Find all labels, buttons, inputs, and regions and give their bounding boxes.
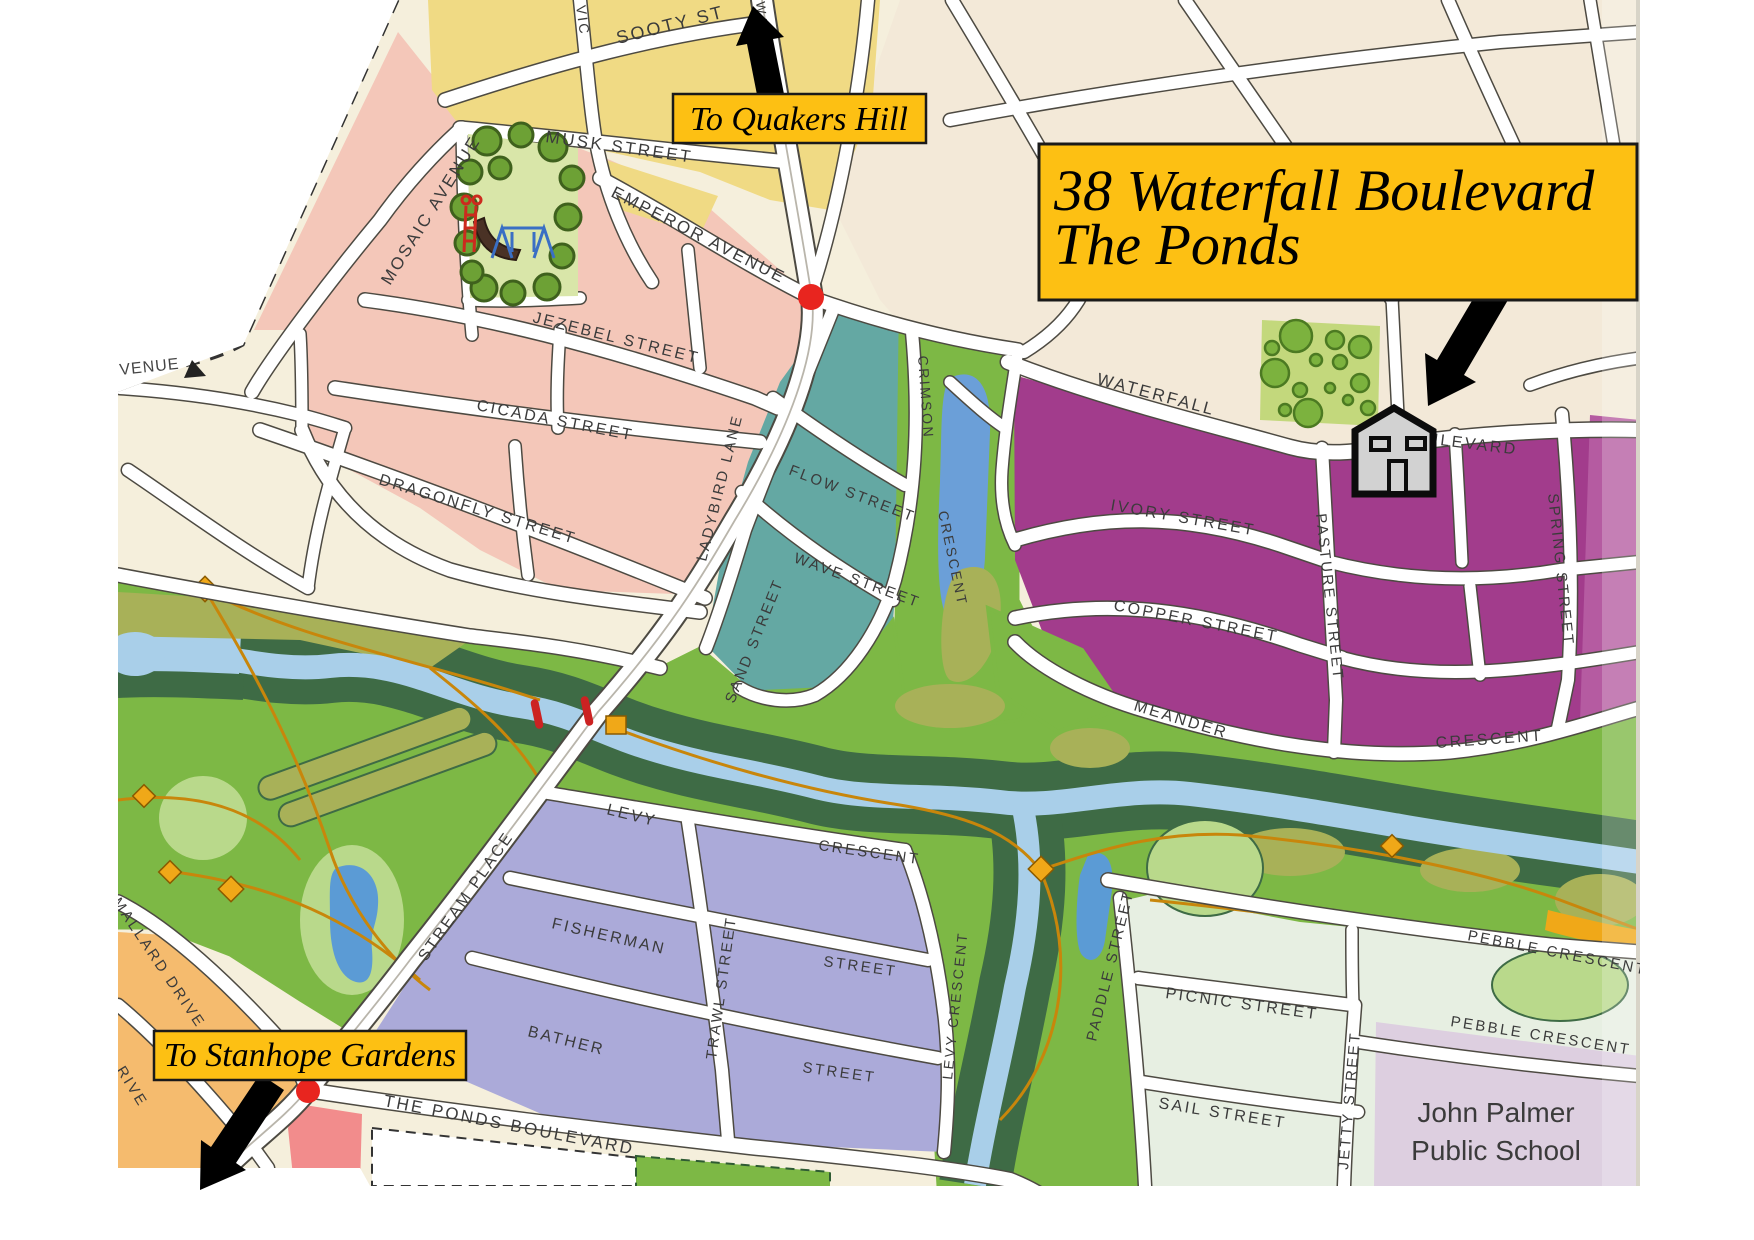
svg-text:Public School: Public School: [1411, 1135, 1581, 1166]
svg-text:To Quakers Hill: To Quakers Hill: [690, 101, 908, 138]
svg-text:To Stanhope Gardens: To Stanhope Gardens: [164, 1037, 456, 1074]
svg-text:John Palmer: John Palmer: [1417, 1097, 1574, 1128]
svg-text:The Ponds: The Ponds: [1054, 212, 1301, 277]
